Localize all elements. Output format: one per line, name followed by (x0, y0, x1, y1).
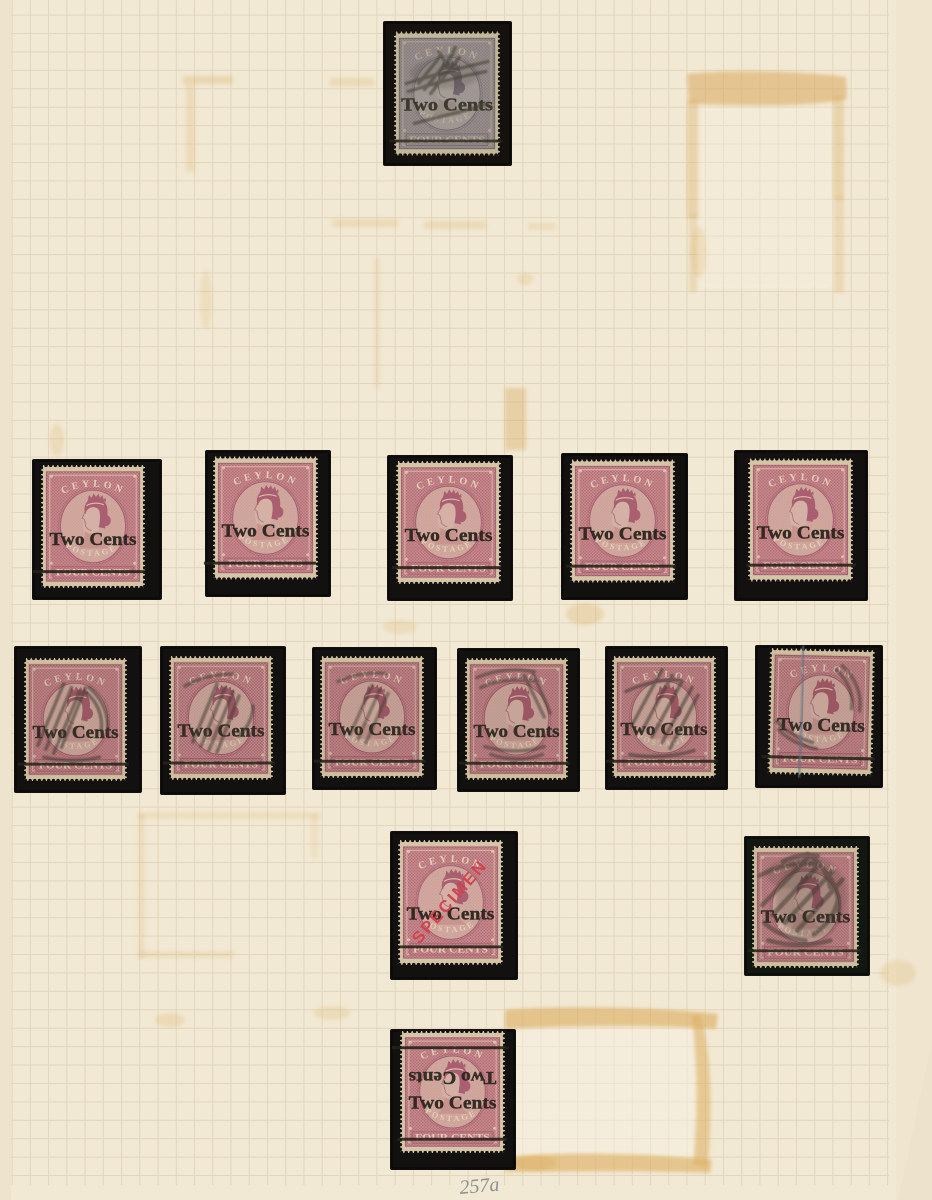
svg-text:Two Cents: Two Cents (222, 520, 310, 540)
svg-text:Two Cents: Two Cents (405, 525, 493, 545)
svg-text:Two Cents: Two Cents (50, 529, 137, 549)
svg-text:Two Cents: Two Cents (409, 1093, 497, 1113)
svg-text:257a: 257a (459, 1174, 501, 1199)
svg-text:Two Cents: Two Cents (579, 523, 667, 543)
svg-text:FOUR CENTS: FOUR CENTS (56, 569, 130, 579)
svg-text:Two Cents: Two Cents (409, 1068, 497, 1088)
svg-text:Two Cents: Two Cents (757, 522, 845, 542)
